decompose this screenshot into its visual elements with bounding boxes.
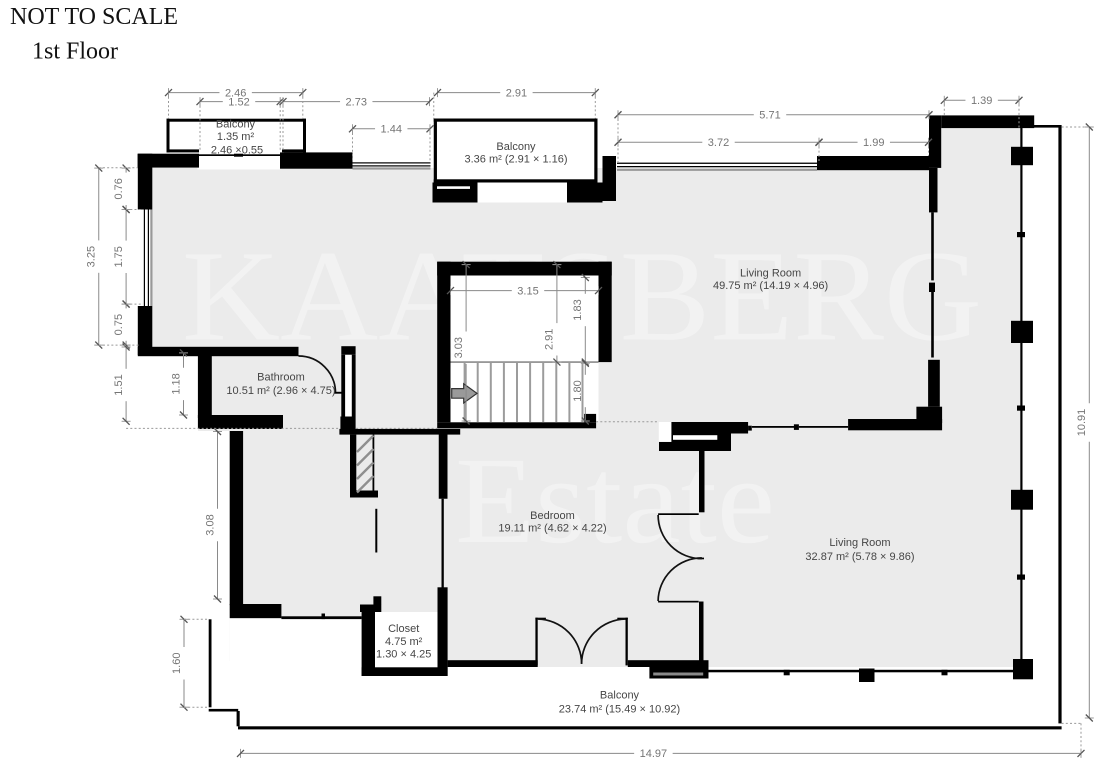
svg-text:1.44: 1.44: [381, 124, 402, 136]
svg-text:Estate: Estate: [455, 432, 775, 569]
svg-text:1.99: 1.99: [863, 137, 884, 149]
svg-text:3.15: 3.15: [517, 285, 538, 297]
svg-text:1.83: 1.83: [572, 299, 584, 320]
svg-text:2.46 ×0.55: 2.46 ×0.55: [211, 145, 263, 157]
svg-text:Living Room: Living Room: [829, 537, 890, 549]
svg-text:1.18: 1.18: [170, 373, 182, 394]
svg-text:Bathroom: Bathroom: [257, 372, 305, 384]
svg-text:1.51: 1.51: [113, 374, 125, 395]
svg-text:5.71: 5.71: [759, 110, 780, 122]
svg-text:2.73: 2.73: [346, 96, 367, 108]
svg-text:1st Floor: 1st Floor: [32, 39, 118, 65]
svg-text:32.87 m² (5.78 × 9.86): 32.87 m² (5.78 × 9.86): [805, 551, 914, 563]
svg-text:10.51 m² (2.96 × 4.75): 10.51 m² (2.96 × 4.75): [226, 385, 335, 397]
svg-text:Balcony: Balcony: [496, 141, 536, 153]
svg-text:Bedroom: Bedroom: [530, 510, 575, 522]
svg-text:Living Room: Living Room: [740, 267, 801, 279]
svg-text:1.60: 1.60: [171, 653, 183, 674]
svg-text:4.75 m²: 4.75 m²: [385, 636, 423, 648]
svg-text:NOT TO SCALE: NOT TO SCALE: [10, 4, 178, 30]
svg-text:Closet: Closet: [388, 623, 419, 635]
svg-text:14.97: 14.97: [640, 748, 668, 760]
svg-text:49.75 m² (14.19 × 4.96): 49.75 m² (14.19 × 4.96): [713, 280, 828, 292]
svg-text:3.08: 3.08: [204, 514, 216, 535]
svg-text:1.80: 1.80: [572, 380, 584, 401]
svg-text:23.74 m² (15.49 × 10.92): 23.74 m² (15.49 × 10.92): [559, 704, 680, 716]
svg-text:0.76: 0.76: [113, 178, 125, 199]
svg-text:1.30 × 4.25: 1.30 × 4.25: [376, 649, 431, 661]
svg-text:3.03: 3.03: [453, 337, 465, 358]
svg-text:19.11 m² (4.62 × 4.22): 19.11 m² (4.62 × 4.22): [498, 522, 606, 534]
svg-text:2.91: 2.91: [544, 329, 556, 350]
svg-text:1.39: 1.39: [971, 95, 992, 107]
svg-text:KAATSBERG: KAATSBERG: [182, 225, 982, 369]
svg-text:3.25: 3.25: [86, 246, 98, 267]
svg-text:3.72: 3.72: [708, 137, 729, 149]
svg-text:Balcony: Balcony: [600, 690, 640, 702]
svg-text:1.35 m²: 1.35 m²: [217, 131, 255, 143]
svg-text:1.52: 1.52: [228, 96, 249, 108]
svg-text:2.91: 2.91: [506, 87, 527, 99]
svg-text:1.75: 1.75: [113, 246, 125, 267]
svg-text:0.75: 0.75: [113, 314, 125, 335]
svg-text:Balcony: Balcony: [216, 119, 256, 131]
svg-text:3.36 m² (2.91 × 1.16): 3.36 m² (2.91 × 1.16): [464, 153, 567, 165]
svg-text:10.91: 10.91: [1076, 409, 1088, 437]
